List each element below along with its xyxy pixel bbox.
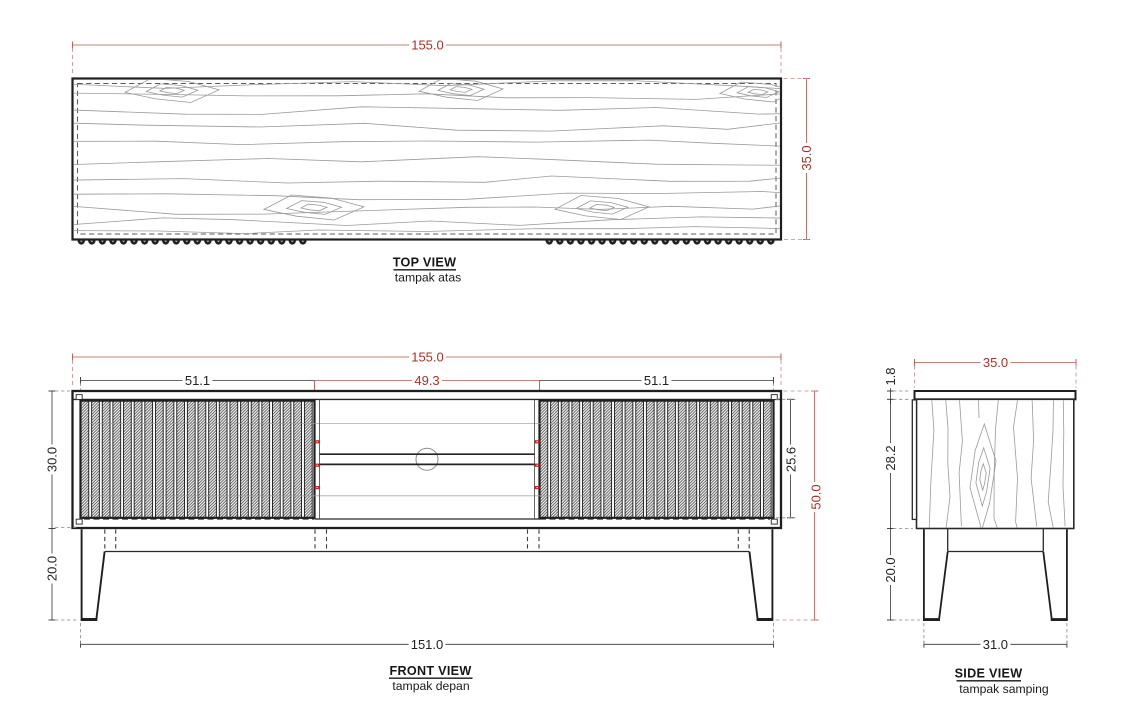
svg-text:155.0: 155.0 — [411, 38, 444, 53]
svg-text:tampak atas: tampak atas — [395, 271, 461, 285]
svg-text:25.6: 25.6 — [784, 447, 799, 472]
svg-text:50.0: 50.0 — [809, 484, 824, 509]
svg-text:31.0: 31.0 — [983, 637, 1008, 652]
svg-text:TOP VIEW: TOP VIEW — [393, 256, 457, 270]
svg-text:tampak depan: tampak depan — [392, 679, 469, 693]
svg-text:20.0: 20.0 — [883, 557, 898, 582]
svg-text:51.1: 51.1 — [185, 373, 210, 388]
svg-text:30.0: 30.0 — [45, 447, 60, 472]
svg-text:51.1: 51.1 — [644, 373, 669, 388]
svg-text:28.2: 28.2 — [883, 445, 898, 470]
svg-text:35.0: 35.0 — [983, 355, 1008, 370]
svg-text:1.8: 1.8 — [883, 367, 898, 385]
svg-text:49.3: 49.3 — [414, 373, 439, 388]
svg-text:20.0: 20.0 — [45, 556, 60, 581]
svg-text:tampak samping: tampak samping — [959, 682, 1048, 696]
svg-text:SIDE VIEW: SIDE VIEW — [955, 667, 1023, 681]
svg-text:155.0: 155.0 — [411, 350, 444, 365]
svg-text:151.0: 151.0 — [411, 637, 444, 652]
svg-text:35.0: 35.0 — [799, 145, 814, 170]
svg-text:FRONT VIEW: FRONT VIEW — [389, 664, 471, 678]
